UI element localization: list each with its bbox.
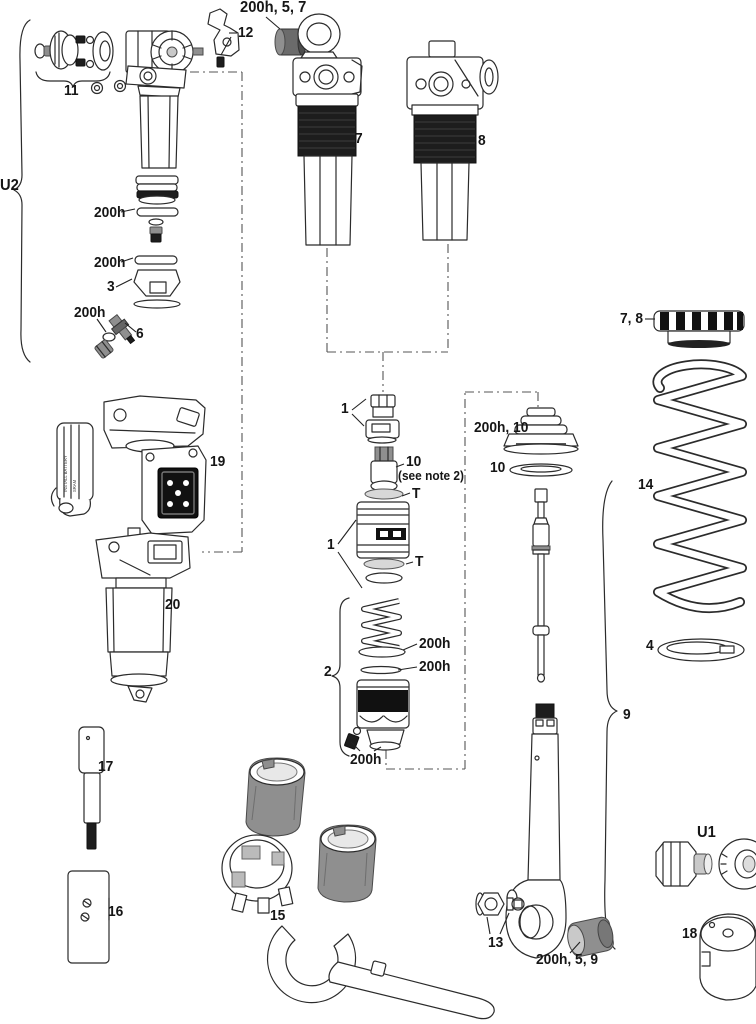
part-1-piston-assembly [357,502,409,558]
callout-200h-4: 200h [419,637,450,652]
callout-17: 17 [98,760,113,775]
battery: INSTALL BATTERY SRAM [51,423,93,516]
callout-19: 19 [210,455,225,470]
damper-motor-assembly [126,31,203,168]
battery-text-line1: INSTALL BATTERY [63,455,68,492]
callout-see-note-2: (see note 2) [398,470,464,483]
callout-200h-1: 200h [94,206,125,221]
callout-200h-6: 200h [350,753,381,768]
callout-15: 15 [270,909,285,924]
preload-collar-7-8 [654,311,744,348]
piston-cap-with-band [136,176,178,204]
washer-below-piston [366,573,402,583]
callout-10a: 10 [406,455,421,470]
glide-ring-T-upper [365,489,403,499]
set-screw-200h [344,733,359,749]
washer-200h-b [361,667,401,674]
part-16-block [68,871,109,963]
u1-knob-right [719,839,756,889]
callout-200h-2: 200h [94,256,125,271]
callout-9: 9 [623,708,631,723]
callout-8: 8 [478,134,486,149]
part-15-sleeve-lower [318,825,376,902]
callout-3: 3 [107,280,115,295]
rebound-piston [357,680,409,728]
callout-16: 16 [108,905,123,920]
callout-7-8: 7, 8 [620,312,643,327]
washer-200h-a [359,647,405,657]
callout-13: 13 [488,936,503,951]
callout-2: 2 [324,665,332,680]
callout-4: 4 [646,639,654,654]
callout-1a: 1 [341,402,349,417]
part-18-cup [700,914,756,1000]
callout-6: 6 [136,327,144,342]
callout-200h-5-7: 200h, 5, 7 [240,0,306,16]
part-15-sleeve-upper [246,758,305,836]
callout-200h-5-9: 200h, 5, 9 [536,953,598,968]
callout-u2: U2 [0,178,19,194]
diagram-art: INSTALL BATTERY SRAM [0,0,756,1024]
callout-200h-5: 200h [419,660,450,675]
part-1-shaft-nut-and-cap [366,395,399,443]
part-15-wrench [268,926,495,1019]
brace-2 [332,598,349,756]
damper-shaft-body [506,704,566,958]
brace-9 [603,481,617,949]
u1-knob-left [656,842,712,886]
callout-u1: U1 [697,825,716,841]
part-2-rebound-stack [332,598,409,756]
callout-12: 12 [238,26,253,41]
parts-diagram: INSTALL BATTERY SRAM [0,0,756,1024]
callout-200h-3: 200h [74,306,105,321]
callout-7: 7 [355,132,363,147]
part-4-spring-retainer [658,639,744,661]
callout-14: 14 [638,478,653,493]
part-14-coil-spring [657,364,742,608]
part-15-castellated-ring [222,835,293,913]
small-coil-spring [364,601,399,648]
callout-10b: 10 [490,461,505,476]
needle-shaft [532,489,550,682]
callout-1b: 1 [327,538,335,553]
callout-11: 11 [64,84,79,99]
callout-t2: T [415,555,423,570]
part-20-damper-body [96,528,190,702]
part-10-valve [371,447,397,491]
glide-ring-T-lower [364,559,404,569]
callout-200h-10: 200h, 10 [474,421,528,436]
battery-text-line2: SRAM [72,479,77,492]
callout-t1: T [412,487,420,502]
part-17-tool [79,727,104,849]
part-19-control-module [104,396,206,534]
part-11-adjuster-knob-kit [35,31,126,94]
part-12-lever [208,9,239,67]
washer-10 [510,464,572,476]
callout-18: 18 [682,927,697,942]
callout-20: 20 [165,598,180,613]
